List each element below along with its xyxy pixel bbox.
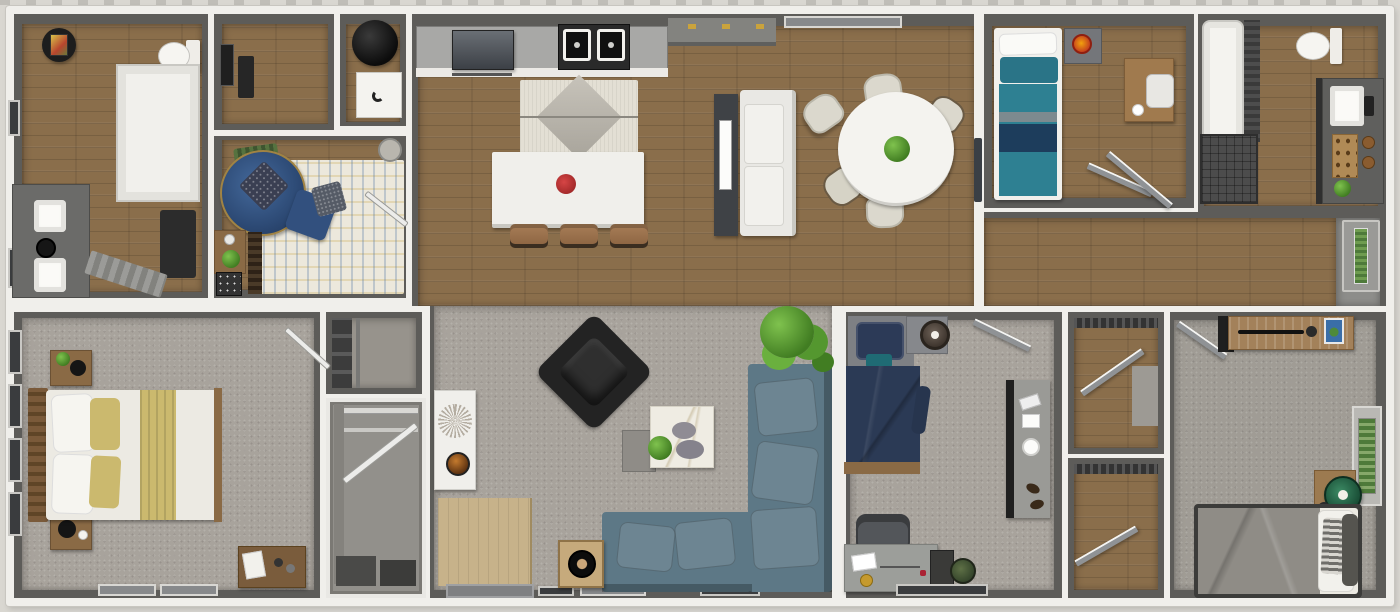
- sofa-cushion: [616, 521, 677, 573]
- waste-bin: [950, 558, 976, 584]
- headboard: [28, 388, 48, 522]
- pillow: [51, 393, 96, 453]
- wall-mid-left: [6, 298, 412, 312]
- decor-rod: [1238, 330, 1304, 334]
- floor-plant: [760, 306, 814, 358]
- sink: [34, 258, 66, 292]
- round-side-table: [378, 138, 402, 162]
- counter-stool: [610, 224, 648, 248]
- table-plant: [884, 136, 910, 162]
- water-heater: [352, 20, 398, 66]
- floor-mat: [336, 556, 376, 586]
- loveseat-cushion: [744, 166, 784, 226]
- lamp-top: [931, 331, 939, 339]
- closet-shelves: [332, 318, 352, 388]
- toilet-bowl: [1296, 32, 1330, 60]
- starburst-decor: [438, 404, 472, 438]
- sofa-cushion: [750, 506, 820, 570]
- window: [8, 100, 20, 136]
- tv: [719, 120, 732, 190]
- window: [98, 584, 156, 596]
- front-door: [446, 584, 534, 598]
- orange-lamp: [1072, 34, 1092, 54]
- sink: [34, 200, 66, 232]
- sectional-back-edge: [602, 584, 752, 592]
- bathtub: [1202, 20, 1244, 142]
- window: [784, 16, 902, 28]
- hall-bench: [238, 56, 254, 98]
- closet-shelf: [334, 408, 418, 414]
- decor-pebble: [672, 422, 696, 439]
- slat-panel: [248, 232, 262, 294]
- sink: [1330, 86, 1364, 126]
- oven-handle: [452, 73, 512, 76]
- navy-bed: [846, 366, 920, 466]
- teal-pillow: [1000, 57, 1058, 83]
- tan-pillow: [89, 455, 122, 508]
- round-dish: [1022, 438, 1040, 456]
- white-box: [1022, 414, 1040, 428]
- closet-shelf: [1074, 464, 1158, 474]
- room-closet-b: [1068, 458, 1164, 598]
- counter-stool: [560, 224, 598, 248]
- blanket-navy-band: [999, 124, 1057, 152]
- candle: [78, 530, 88, 540]
- carpet-patch: [1132, 366, 1158, 426]
- roof-edge-ticks: [0, 0, 1400, 5]
- window: [160, 584, 218, 596]
- decor-art: [50, 34, 68, 56]
- bed-base: [844, 462, 920, 474]
- tan-pillow: [90, 398, 120, 450]
- shower-enclosure: [116, 64, 200, 202]
- plant: [56, 352, 70, 366]
- jar: [1362, 136, 1375, 149]
- desk-accent: [920, 570, 926, 576]
- sideboard: [668, 18, 776, 46]
- decor-crate: [216, 272, 242, 296]
- potted-plant: [1334, 180, 1351, 197]
- table-plant: [648, 436, 672, 460]
- potted-plant: [222, 250, 240, 268]
- floor-mat: [380, 560, 416, 586]
- window: [896, 584, 988, 596]
- sectional-back-edge: [824, 364, 832, 592]
- dresser-tray: [242, 550, 266, 579]
- framed-art: [1324, 318, 1344, 344]
- decor: [286, 564, 295, 573]
- range-hood: [452, 30, 514, 70]
- sideboard-brass-pulls: [674, 24, 770, 29]
- lamp: [70, 360, 86, 376]
- toilet-tank: [1330, 28, 1342, 64]
- lamp: [58, 520, 76, 538]
- entry-floor: [438, 498, 532, 586]
- pillow: [51, 453, 95, 514]
- rug-centerline: [520, 116, 638, 118]
- window: [8, 384, 22, 428]
- chair-button: [1338, 490, 1348, 500]
- footboard: [214, 388, 222, 522]
- window-greenery: [1358, 418, 1376, 494]
- sofa-cushion: [753, 377, 818, 437]
- sofa-cushion: [674, 517, 737, 571]
- decor-bowl: [446, 452, 470, 476]
- closet-shelf: [1074, 318, 1158, 328]
- desk-cup: [1132, 104, 1144, 116]
- flower-centerpiece: [556, 174, 576, 194]
- wood-tray: [1332, 134, 1358, 178]
- window: [8, 330, 22, 374]
- wall-tv: [220, 44, 234, 86]
- gray-blanket: [1198, 508, 1320, 594]
- counter-stool: [510, 224, 548, 248]
- floorplan-render: [0, 0, 1400, 612]
- faucet: [1364, 96, 1374, 116]
- decor: [1306, 326, 1317, 337]
- sofa-cushion: [750, 440, 819, 506]
- washer-door-mark: [372, 90, 384, 102]
- jar: [1362, 156, 1375, 169]
- decor: [274, 558, 283, 567]
- window: [8, 438, 22, 482]
- dark-pillow: [1342, 514, 1358, 586]
- tiled-shower: [1200, 134, 1258, 204]
- sink-drain: [574, 42, 580, 48]
- shower-curtain: [1244, 20, 1260, 142]
- door-glass-insert: [1354, 228, 1368, 284]
- tan-blanket-runner: [140, 390, 176, 520]
- bath-mat: [160, 210, 196, 278]
- closet-rod: [356, 318, 360, 388]
- pillow: [999, 32, 1058, 56]
- room-rear-hallway: [984, 212, 1336, 306]
- blanket-gray-band: [999, 112, 1057, 122]
- desk-chair: [1146, 74, 1174, 108]
- desk-pen: [880, 566, 920, 568]
- desk-lamp: [860, 574, 873, 587]
- decor-pebble: [676, 440, 704, 459]
- vanity-tray: [36, 238, 56, 258]
- window: [8, 492, 22, 536]
- vase: [224, 234, 235, 245]
- loveseat-cushion: [744, 104, 784, 164]
- bedroom-door-open: [974, 138, 982, 202]
- speaker-cone: [568, 550, 596, 578]
- sink-drain: [608, 42, 614, 48]
- notebook: [851, 552, 877, 571]
